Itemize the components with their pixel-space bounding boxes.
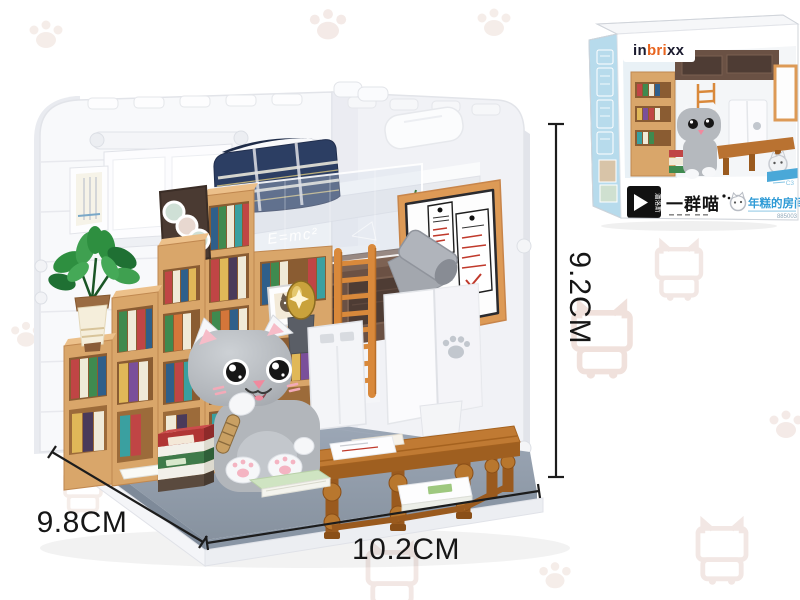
width-dimension-label: 10.2CM xyxy=(338,533,474,567)
item-number: 885003 xyxy=(777,214,798,220)
series-logo: 一群喵 xyxy=(666,194,720,215)
box-brand-logo: inbrixx xyxy=(633,42,685,59)
maker-logo-text: 潘洛斯 xyxy=(654,193,663,213)
box-spine xyxy=(589,34,621,218)
wall-hanging xyxy=(70,166,108,234)
depth-dimension-label: 9.8CM xyxy=(30,506,134,540)
shelf-books-c xyxy=(117,305,153,463)
product-name: 年糕的房间 xyxy=(748,196,800,210)
product-box: inbrixx 潘洛斯 一群喵 年糕的房间 885003 xyxy=(577,8,800,234)
product-image: E=mc² xyxy=(0,0,800,600)
corner-mark: C3 xyxy=(786,180,795,187)
box-front-face: inbrixx 潘洛斯 一群喵 年糕的房间 885003 xyxy=(617,24,800,220)
height-dimension-label: 9.2CM xyxy=(562,248,596,348)
box-scene xyxy=(623,46,798,182)
product-cat-icon xyxy=(731,193,746,211)
